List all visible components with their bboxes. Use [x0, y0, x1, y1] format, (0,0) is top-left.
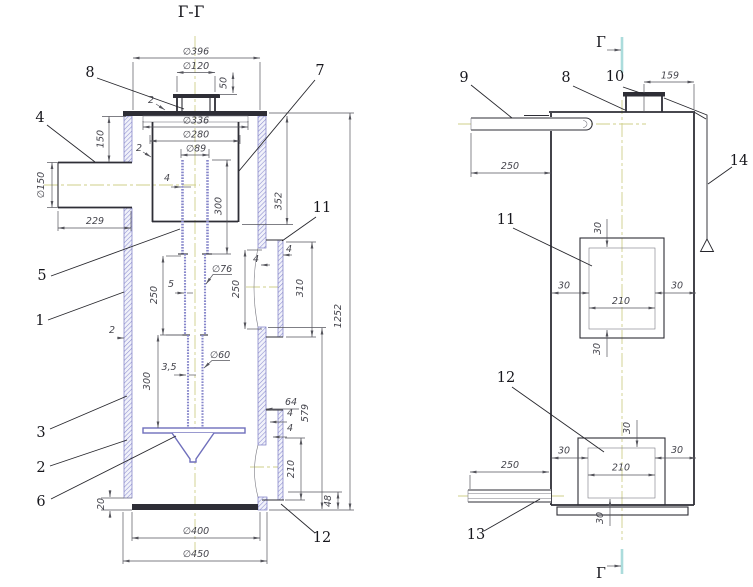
technical-drawing-page: Г-Г	[0, 0, 753, 587]
dim-4-sleeve-b: 4	[253, 254, 259, 265]
dim-210: 210	[286, 460, 297, 478]
dim-250-bottom: 250	[501, 460, 519, 471]
bottom-plate	[132, 504, 258, 510]
dim-win2-right: 30	[671, 445, 683, 456]
dim-229: 229	[86, 216, 104, 227]
callout-11-right: 11	[497, 212, 515, 228]
section-letter-top: Г	[596, 33, 606, 51]
dim-d450: ∅450	[183, 549, 209, 560]
dim-1252: 1252	[333, 304, 344, 328]
section-title: Г-Г	[178, 2, 205, 21]
dim-150: 150	[96, 130, 107, 148]
dim-64: 64	[285, 397, 297, 408]
dim-579: 579	[300, 404, 311, 422]
callout-14: 14	[730, 153, 748, 169]
callout-2: 2	[36, 460, 45, 476]
dim-5: 5	[168, 279, 174, 290]
callout-8-right: 8	[561, 70, 570, 86]
callout-4: 4	[35, 110, 44, 126]
callout-11: 11	[313, 200, 331, 216]
dim-20: 20	[96, 498, 107, 510]
dim-352: 352	[274, 192, 285, 210]
callout-7: 7	[315, 63, 324, 79]
dim-2-wall: 2	[109, 325, 115, 336]
dim-d76: ∅76	[212, 264, 232, 275]
callout-12: 12	[313, 530, 331, 546]
sleeve-lower	[278, 410, 283, 500]
dim-win1-bottom: 30	[592, 343, 603, 355]
callout-10: 10	[606, 69, 624, 85]
right-wall-upper	[258, 116, 266, 248]
upper-side-tube	[471, 117, 592, 131]
callout-9: 9	[459, 70, 468, 86]
dim-3-5: 3,5	[161, 362, 176, 373]
dim-d400: ∅400	[183, 526, 209, 537]
dim-300-upper: 300	[214, 197, 225, 215]
dim-d120: ∅120	[183, 61, 209, 72]
dim-300-lower: 300	[142, 372, 153, 390]
callout-8: 8	[85, 65, 94, 81]
dim-d60: ∅60	[210, 350, 230, 361]
left-wall-upper	[124, 116, 132, 162]
callout-12-right: 12	[497, 370, 515, 386]
dim-250-pipe: 250	[149, 286, 160, 304]
sleeve-upper	[278, 240, 283, 337]
callout-13: 13	[467, 527, 485, 543]
dim-4-lower-b: 4	[287, 423, 293, 434]
dim-4-lower-a: 4	[287, 408, 293, 419]
section-letter-bottom: Г	[596, 564, 606, 582]
dim-win1-width: 210	[612, 296, 630, 307]
dim-48: 48	[323, 495, 334, 507]
dim-4-sleeve-a: 4	[286, 244, 292, 255]
dim-159: 159	[661, 71, 679, 82]
dim-4-pipe: 4	[164, 173, 170, 184]
dim-310: 310	[295, 279, 306, 297]
drawing-canvas: Г-Г	[0, 0, 753, 587]
callout-3: 3	[36, 425, 45, 441]
callout-1: 1	[35, 313, 44, 329]
dim-d89: ∅89	[186, 144, 206, 155]
callout-5: 5	[37, 268, 46, 284]
dim-win2-width: 210	[612, 463, 630, 474]
dim-win1-right: 30	[671, 281, 683, 292]
dim-d336: ∅336	[183, 116, 209, 127]
dim-250-top: 250	[501, 161, 519, 172]
dim-d396: ∅396	[183, 47, 209, 58]
dim-win2-bottom: 30	[595, 512, 606, 524]
left-wall-lower	[124, 208, 132, 498]
dim-win2-top: 30	[622, 422, 633, 434]
right-wall-foot	[258, 497, 267, 510]
dim-250-opening: 250	[231, 280, 242, 298]
paper-background	[0, 0, 753, 587]
dim-win1-top: 30	[593, 222, 604, 234]
dim-d280: ∅280	[183, 130, 209, 141]
umbrella-plate	[143, 428, 245, 433]
dim-win2-left: 30	[558, 446, 570, 457]
dim-d150: ∅150	[36, 172, 47, 198]
dim-win1-left: 30	[558, 281, 570, 292]
lower-side-tube	[468, 489, 551, 503]
dim-50: 50	[219, 77, 230, 89]
dim-2-shell: 2	[136, 143, 142, 154]
right-wall-middle	[258, 327, 266, 445]
callout-6: 6	[36, 494, 45, 510]
